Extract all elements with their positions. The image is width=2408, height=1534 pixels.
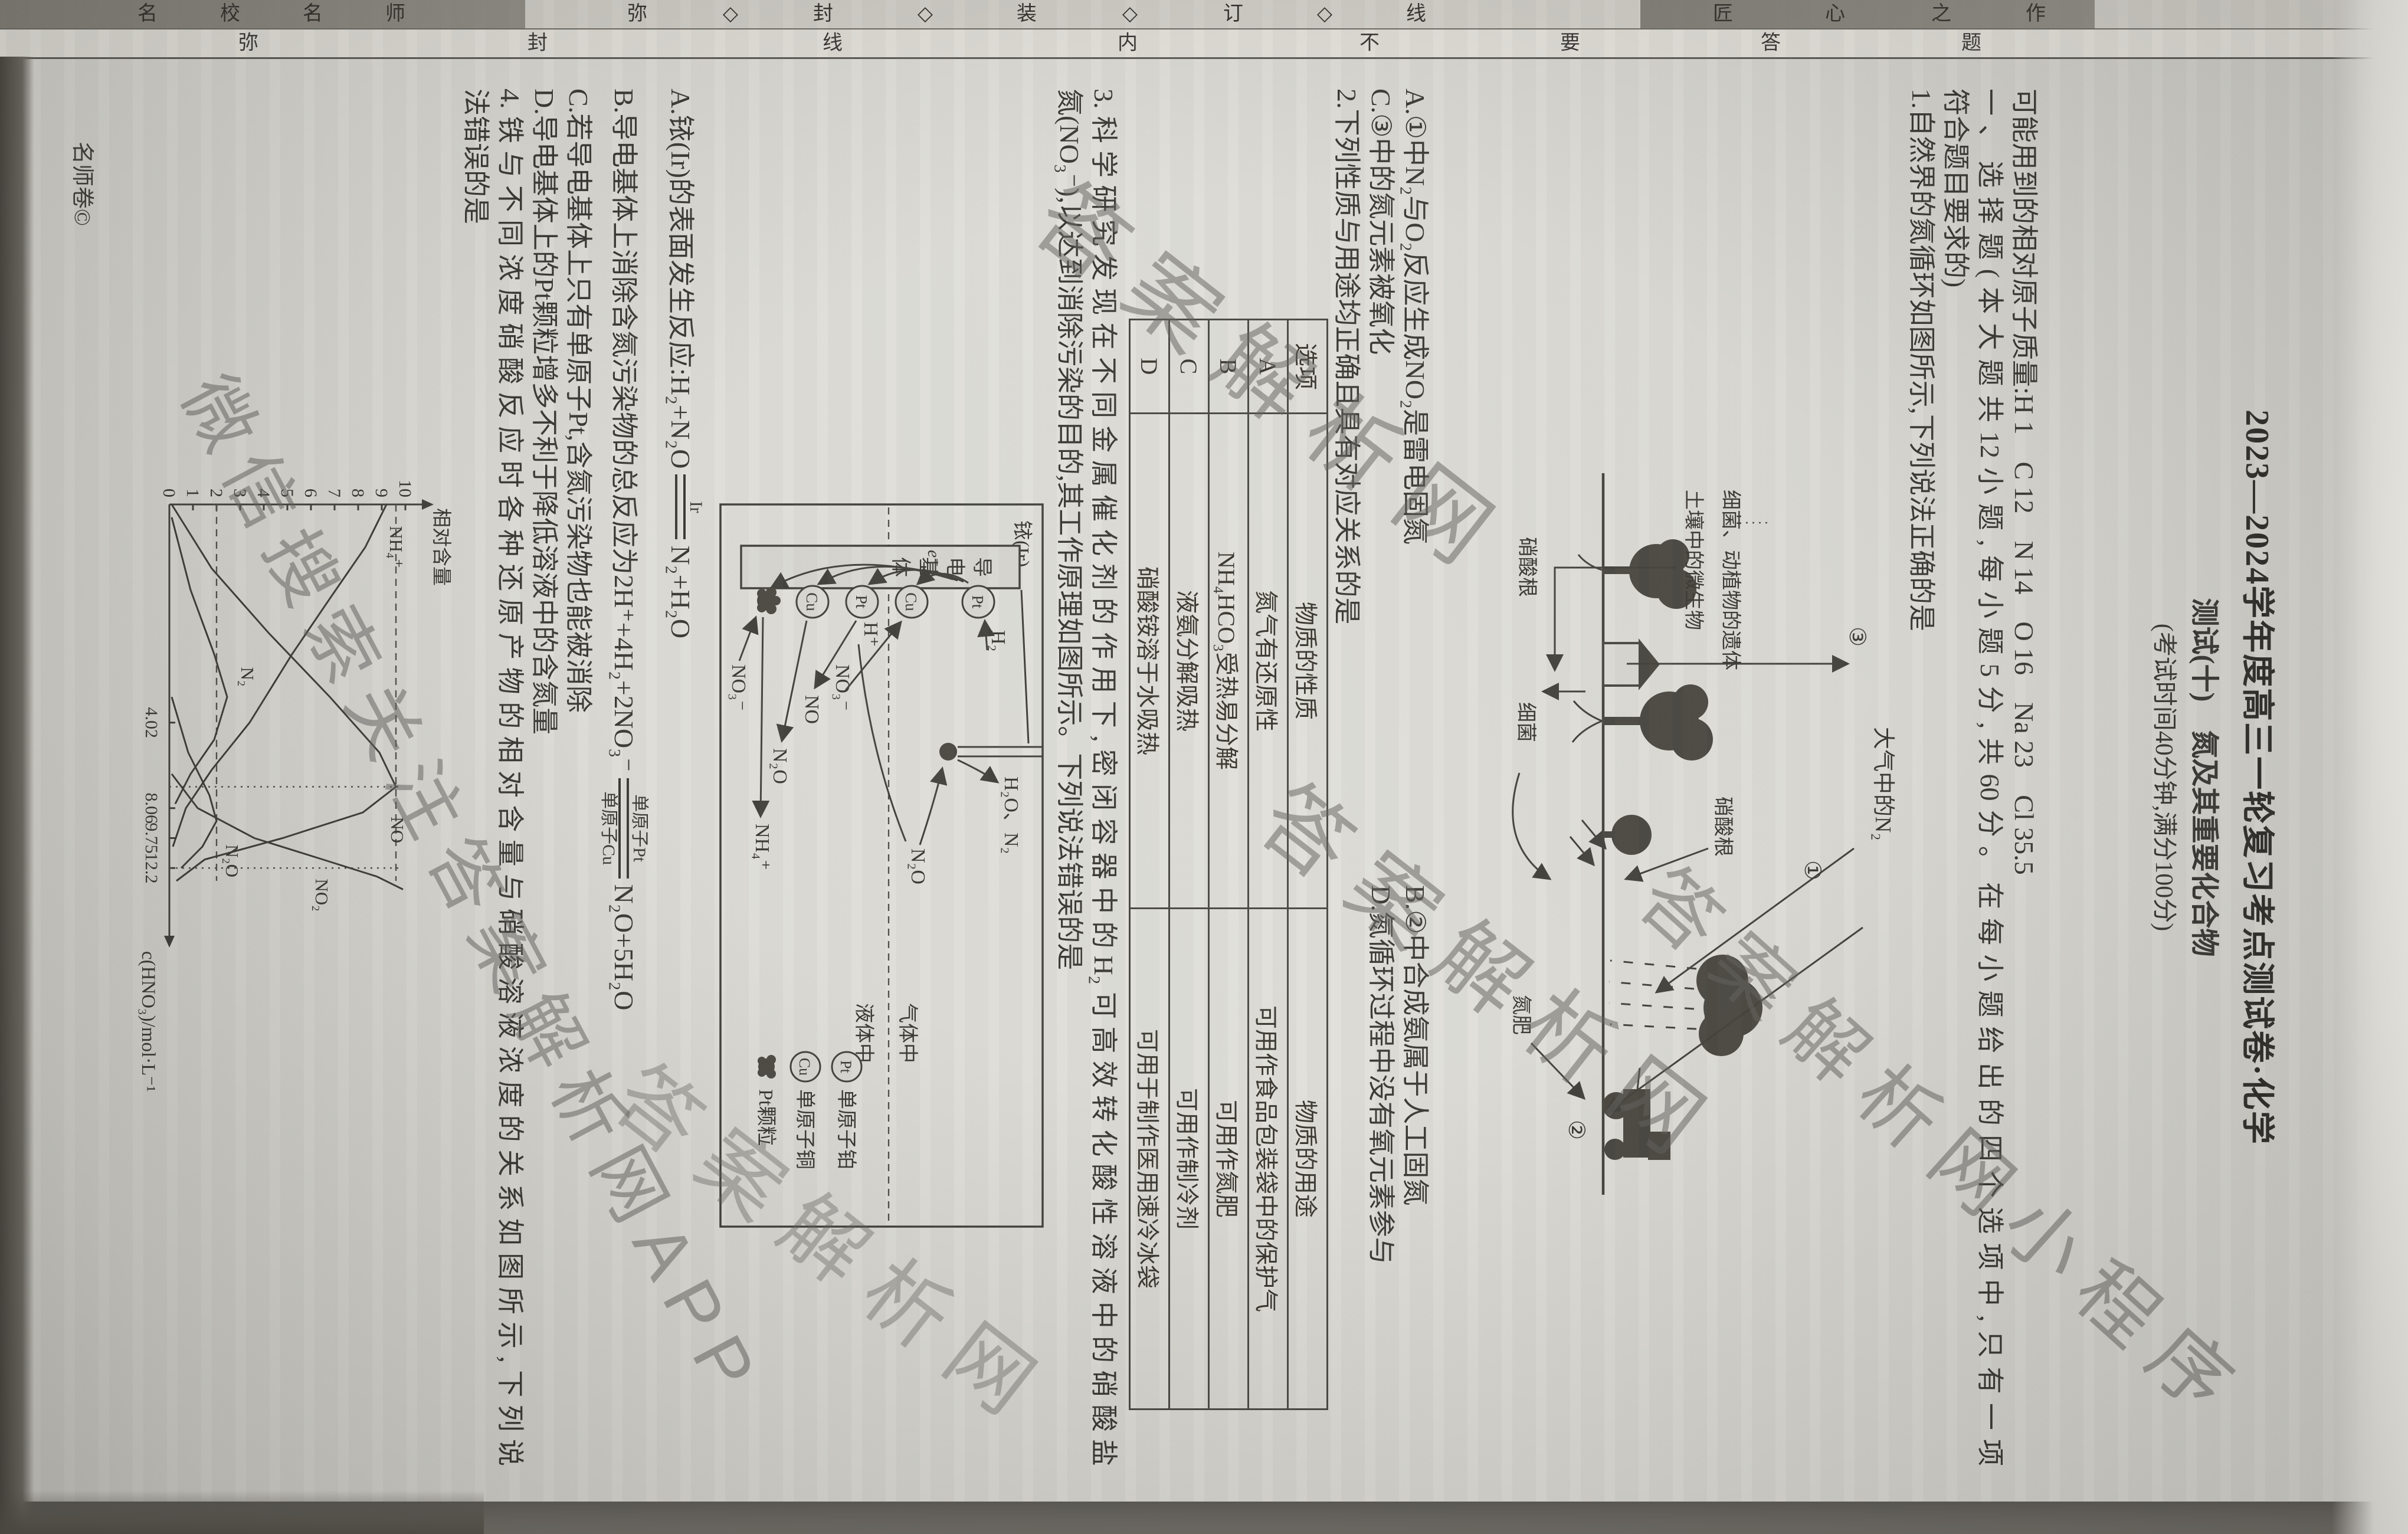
brand-char: 之 [1927, 1, 1955, 27]
h2-arrow [985, 621, 987, 650]
n2o-liquid-label: N₂O [769, 748, 791, 784]
double-line-icon [675, 474, 686, 539]
q2-table: 选项 物质的性质 物质的用途 A 氮气有还原性 可用作食品包装袋中的保护气 B … [1129, 319, 1328, 1410]
inner-char: 答 [1757, 31, 1785, 57]
inner-char: 题 [1958, 31, 1986, 57]
gas-phase-label: 气体中 [896, 1003, 919, 1063]
q4-graph-svg: 0123456789104.028.069.7512.2相对含量c(HNO₃)/… [116, 466, 458, 1207]
legend-single-atom-cu: 单原子铜 [794, 1089, 815, 1169]
q1-options-line1: A.①中N₂与O₂反应生成NO₂是雷电固氮B.②中合成氨属于人工固氮 [1398, 88, 1432, 1466]
iridium-leader [1021, 590, 1028, 743]
legend-pt-particle: Pt颗粒 [755, 1089, 777, 1146]
x-tick-label: 4.02 [142, 707, 161, 739]
q3-option-b-pre: B.导电基体上消除含氮污染物的总反应为2H⁺+4H₂+2NO₃⁻ [595, 88, 652, 772]
x-tick-label: 12.2 [142, 853, 161, 884]
site-label: Cu [803, 592, 821, 611]
y-tick-label: 6 [301, 489, 320, 497]
seal-diamond-icon: ◇ [911, 1, 939, 27]
n2o-to-ir-arrow [920, 768, 942, 845]
atomic-mass-note: 可能用到的相对原子质量:H 1 C 12 N 14 O 16 Na 23 Cl … [2007, 88, 2041, 1466]
inner-char: 内 [1114, 31, 1142, 57]
circle-2-label: ② [1564, 1120, 1588, 1140]
root-arrow-2 [1570, 837, 1594, 865]
cell-use: 可用于制作医用速冷冰袋 [1130, 909, 1169, 1410]
q3-option-d: D.导电基体上的Pt颗粒增多不利于降低溶液中的含氮量 [527, 88, 561, 1466]
exam-content: 2023—2024学年度高三一轮复习考点测试卷·化学 测试(十) 氮及其重要化合… [0, 56, 2408, 1502]
cell-option: C [1169, 320, 1209, 414]
no3-label: NO₃⁻ [831, 664, 853, 711]
seal-diamond-icon: ◇ [716, 1, 745, 27]
h2-label: H₂ [987, 630, 1009, 651]
fertilizer-label: 氮肥 [1510, 995, 1532, 1035]
fertilizer-arrow [1531, 1043, 1584, 1099]
inner-char: 不 [1356, 31, 1384, 57]
brand-segment: 作 之 心 匠 [1640, 0, 2095, 28]
catalyst-under [655, 505, 675, 510]
section-heading-wrap: 符合题目要求的) [1938, 88, 1973, 1466]
product-arrow [958, 760, 998, 782]
catalyst-under: 单原子Cu [598, 791, 618, 865]
n2o-rise-path [859, 644, 906, 841]
cell-use: 可用作食品包装袋中的保护气 [1249, 909, 1288, 1410]
roots-icon [1572, 555, 1602, 742]
inner-char: 线 [819, 31, 847, 57]
nitrogen-cycle-svg: ③ ① ② 大气中的N₂ 硝酸根 细菌、动植物的遗体 土壤中的微生物 硝酸根 细… [1432, 466, 1904, 1207]
site-label: Pt [969, 595, 987, 609]
brand-char: 匠 [1709, 1, 1737, 27]
y-tick-label: 8 [348, 489, 368, 497]
seal-band-inner: 题 答 要 不 内 线 封 弥 [0, 28, 2408, 59]
x-axis-title: c(HNO₃)/mol·L⁻¹ [137, 951, 159, 1092]
series-label: N₂ [237, 667, 258, 687]
seal-char: 线 [1402, 1, 1430, 27]
page-subtitle: 测试(十) 氮及其重要化合物 [2183, 88, 2225, 1466]
q3-stem-line2: 氮(NO₃⁻),以达到消除污染的目的,其工作原理如图所示。下列说法错误的是 [1052, 88, 1086, 1466]
header-use: 物质的用途 [1288, 909, 1328, 1410]
y-tick-label: 7 [325, 489, 344, 497]
circle-1-label: ① [1800, 860, 1824, 880]
seal-diamond-icon: ◇ [1116, 1, 1144, 27]
double-line-icon [618, 778, 629, 879]
legend-particle-icon [758, 1055, 776, 1079]
catalyst-sign: Ir [655, 474, 706, 539]
legend-pt-circle: Pt [837, 1060, 854, 1073]
maker-char: 校 [216, 1, 244, 27]
q4-stem-line1: 4.铁与不同浓度硝酸反应时各种还原产物的相对含量与硝酸溶液浓度的关系如图所示,下… [493, 88, 527, 1466]
q1-option-c: C.③中的氮元素被氧化 [1364, 88, 1398, 885]
seal-diamond-icon: ◇ [1311, 1, 1339, 27]
q3-catalysis-figure: 铱(Ir) 气体中 液体中 导 电 基 体 [709, 496, 1046, 1236]
seal-line-segment: 线 ◇ 订 ◇ 装 ◇ 封 ◇ 弥 [525, 0, 1640, 28]
no-label: NO [801, 695, 823, 724]
no3-to-particle-arrow [739, 617, 756, 661]
seal-char: 装 [1013, 1, 1041, 27]
table-header-row: 选项 物质的性质 物质的用途 [1288, 320, 1328, 1410]
site-circles [797, 586, 994, 618]
to-nh4-arrow [761, 617, 763, 817]
series-NO₂ [172, 774, 403, 890]
h2o-n2-label: H₂O、N₂ [1000, 776, 1022, 854]
y-axis-title: 相对含量 [430, 508, 452, 586]
legend-cu-circle: Cu [796, 1058, 813, 1076]
table-row: C 液氨分解吸热 可用作制冷剂 [1169, 320, 1209, 1410]
x-tick-label: 9.75 [142, 822, 161, 854]
iridium-tip-dot [939, 743, 957, 761]
site-label: Cu [902, 592, 920, 611]
q1-option-a: A.①中N₂与O₂反应生成NO₂是雷电固氮 [1398, 88, 1432, 885]
y-tick-label: 9 [372, 489, 391, 497]
maker-char: 名 [133, 1, 162, 27]
catalysis-svg: 铱(Ir) 气体中 液体中 导 电 基 体 [709, 496, 1046, 1236]
y-tick-label: 10 [395, 480, 415, 497]
pt-particle-icon [757, 587, 781, 614]
catalyst-over: 单原子Pt [629, 794, 649, 862]
y-tick-label: 5 [277, 489, 297, 497]
nitrate-rain-label: 硝酸根 [1712, 796, 1734, 857]
site-label: Pt [853, 595, 870, 609]
table-row: B NH₄HCO₃受热易分解 可用作氮肥 [1209, 320, 1249, 1410]
maker-segment: 师 名 校 名 [0, 0, 525, 28]
y-tick-label: 3 [230, 489, 250, 497]
no3-bottom-label: NO₃⁻ [728, 664, 749, 711]
q3-option-a: A.铱(Ir)的表面发生反应:H₂+N₂O Ir N₂+H₂O [652, 88, 709, 1466]
inner-char: 要 [1557, 31, 1584, 57]
q1-nitrogen-cycle-figure: ③ ① ② 大气中的N₂ 硝酸根 细菌、动植物的遗体 土壤中的微生物 硝酸根 细… [1432, 466, 1904, 1207]
nitrate-soil-label: 硝酸根 [1516, 537, 1538, 597]
cell-use: 可用作氮肥 [1209, 909, 1249, 1410]
inner-char: 弥 [235, 31, 263, 57]
seal-char: 订 [1219, 1, 1247, 27]
arrow-2 [1606, 927, 1863, 1113]
q3-option-b: B.导电基体上消除含氮污染物的总反应为2H⁺+4H₂+2NO₃⁻ 单原子Pt 单… [595, 88, 652, 1466]
cell-property: 液氨分解吸热 [1169, 414, 1209, 909]
brand-char: 心 [1821, 1, 1849, 27]
nh4-label: NH₄⁺ [751, 824, 773, 870]
circle-3-label: ③ [1845, 627, 1869, 647]
cell-use: 可用作制冷剂 [1169, 909, 1209, 1410]
y-tick-label: 4 [254, 489, 273, 497]
legend-single-atom-pt: 单原子铂 [835, 1089, 857, 1169]
x-tick-label: 8.06 [142, 793, 161, 824]
substrate-char: 导 [971, 557, 992, 577]
y-tick-label: 1 [183, 489, 202, 497]
table-row: D 硝酸铵溶于水吸热 可用于制作医用速冷冰袋 [1130, 320, 1169, 1410]
q1-options-line2: C.③中的氮元素被氧化D.氮循环过程中没有氧元素参与 [1364, 88, 1398, 1466]
publisher-imprint: 名师卷© [68, 142, 101, 1466]
page-curl-edge [2332, 0, 2408, 1534]
series-NO [172, 504, 396, 881]
header-option: 选项 [1288, 320, 1328, 414]
series-label: NO₂ [312, 879, 332, 912]
catalyst-sign: 单原子Pt 单原子Cu [598, 778, 649, 879]
q3-stem-line1: 3.科学研究发现在不同金属催化剂的作用下,密闭容器中的H₂可高效转化酸性溶液中的… [1086, 88, 1121, 1466]
cell-property: 硝酸铵溶于水吸热 [1130, 414, 1169, 909]
cell-option: B [1209, 320, 1249, 414]
uptake-curve [1513, 773, 1550, 879]
q1-option-d: D.氮循环过程中没有氧元素参与 [1364, 885, 1398, 1264]
page-title: 2023—2024学年度高三一轮复习考点测试卷·化学 [2233, 88, 2281, 1466]
cell-option: D [1130, 320, 1169, 414]
exam-paper: 作 之 心 匠 线 ◇ 订 ◇ 装 ◇ 封 ◇ 弥 师 名 校 名 题 答 要 … [0, 0, 2408, 1502]
desk-edge-left [0, 57, 34, 1534]
q1-option-b: B.②中合成氨属于人工固氮 [1398, 885, 1432, 1205]
q4-graph-figure: 0123456789104.028.069.7512.2相对含量c(HNO₃)/… [116, 466, 458, 1207]
desk-edge-bottom [0, 1490, 484, 1534]
exam-info: (考试时间40分钟,满分100分) [2145, 88, 2183, 1466]
q3-option-c: C.若导电基体上只有单原子Pt,含氮污染物也能被消除 [561, 88, 595, 1466]
table-row: A 氮气有还原性 可用作食品包装袋中的保护气 [1249, 320, 1288, 1410]
legend: Pt 单原子铂 Cu 单原子铜 Pt颗粒 [755, 1052, 861, 1169]
brand-char: 作 [2022, 1, 2050, 27]
seal-char: 弥 [623, 1, 651, 27]
h-plus-label: H⁺ [860, 622, 882, 647]
q1-stem: 1.自然界的氮循环如图所示,下列说法正确的是 [1904, 88, 1938, 1466]
y-tick-label: 2 [207, 489, 226, 497]
header-property: 物质的性质 [1288, 414, 1328, 909]
seal-band-outer: 作 之 心 匠 线 ◇ 订 ◇ 装 ◇ 封 ◇ 弥 师 名 校 名 [0, 0, 2408, 28]
maker-char: 师 [381, 1, 409, 27]
electron-label: e⁻ [924, 550, 943, 567]
series-label: NO [387, 817, 408, 843]
q3-option-b-post: N₂O+5H₂O [595, 884, 652, 1011]
x-axis-arrow-icon [164, 936, 175, 948]
series-label: NH₄⁺ [386, 526, 407, 568]
bacteria-label: 细菌 [1515, 702, 1537, 742]
q2-stem: 2.下列性质与用途均正确且具有对应关系的是 [1329, 88, 1364, 1466]
atmosphere-n2-label: 大气中的N₂ [1870, 727, 1895, 841]
cell-property: NH₄HCO₃受热易分解 [1209, 414, 1249, 909]
remains-label: 细菌、动植物的遗体 [1719, 490, 1742, 670]
cell-option: A [1249, 320, 1288, 414]
series-NH₄⁺ [173, 504, 386, 847]
cell-property: 氮气有还原性 [1249, 414, 1288, 909]
section-heading: 一、选择题(本大题共12小题,每小题5分,共60分。在每小题给出的四个选项中,只… [1973, 88, 2007, 1466]
catalyst-over: Ir [686, 501, 706, 513]
n2o-gas-label: N₂O [907, 848, 929, 884]
tractor-icon [1603, 1068, 1670, 1160]
y-tick-label: 0 [159, 489, 179, 497]
inner-char: 封 [524, 31, 552, 57]
q3-option-a-post: N₂+H₂O [652, 545, 709, 638]
maker-char: 名 [299, 1, 327, 27]
q3-option-a-pre: A.铱(Ir)的表面发生反应:H₂+N₂O [652, 88, 709, 468]
series-label: N₂O [222, 844, 243, 877]
q2-table-wrap: 选项 物质的性质 物质的用途 A 氮气有还原性 可用作食品包装袋中的保护气 B … [1129, 319, 1328, 1466]
seal-char: 封 [809, 1, 837, 27]
q4-stem-line2: 法错误的是 [458, 88, 493, 1466]
soil-microbes-label: 土壤中的微生物 [1682, 490, 1705, 630]
